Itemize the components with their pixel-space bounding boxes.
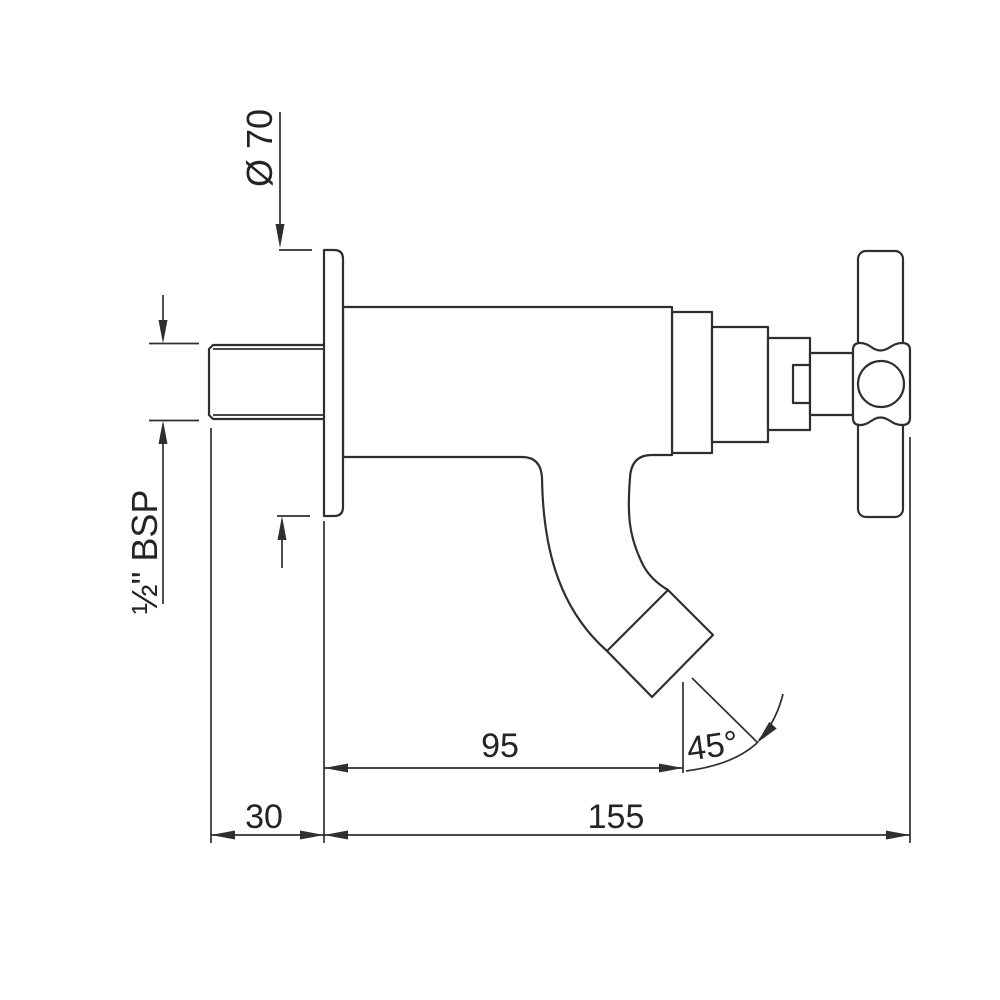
wall-flange — [324, 250, 343, 516]
arrow-left-icon — [324, 764, 348, 773]
cross-handle — [853, 251, 910, 517]
handle-stem — [810, 353, 853, 415]
faucet-part — [209, 250, 910, 697]
dimension-spout-angle: 45° — [684, 678, 783, 771]
valve-nub — [793, 365, 810, 403]
arrow-down-icon — [159, 320, 168, 344]
arrow-up-icon — [159, 421, 168, 445]
tap-body-and-spout — [343, 307, 713, 697]
arrow-left-icon — [211, 831, 235, 840]
arrow-angle-icon — [757, 722, 777, 743]
arrow-down-icon — [276, 224, 285, 248]
arrow-up-icon — [278, 516, 287, 540]
arrow-left-icon — [324, 831, 348, 840]
dim-label-spout-angle: 45° — [684, 724, 740, 769]
dim-label-wall-offset: 30 — [245, 798, 283, 836]
arrow-right-icon — [659, 764, 683, 773]
handle-hub — [853, 343, 910, 425]
threaded-inlet — [209, 345, 324, 419]
dimension-flange-diameter: Ø 70 — [239, 109, 312, 568]
dim-label-overall-projection: 155 — [588, 798, 645, 836]
faucet-technical-drawing: Ø 70 ½" BSP 95 30 155 45° — [0, 0, 1000, 1000]
handle-arm-top — [858, 251, 903, 351]
inlet-pipe-outline — [209, 345, 324, 419]
bonnet-step-2 — [712, 327, 768, 442]
dim-label-inlet-thread: ½" BSP — [124, 490, 165, 615]
handle-arm-bottom — [858, 417, 903, 517]
arrow-right-icon — [300, 831, 324, 840]
bonnet-step-1 — [672, 312, 712, 453]
dimension-inlet-thread: ½" BSP — [124, 295, 199, 614]
dim-label-spout-projection: 95 — [481, 727, 519, 765]
dimension-bottom-row: 30 155 — [211, 798, 910, 840]
dimension-spout-projection: 95 — [324, 727, 683, 773]
angle-arc-tail — [759, 694, 783, 740]
arrow-right-icon — [886, 831, 910, 840]
dim-label-flange-diameter: Ø 70 — [239, 109, 280, 187]
